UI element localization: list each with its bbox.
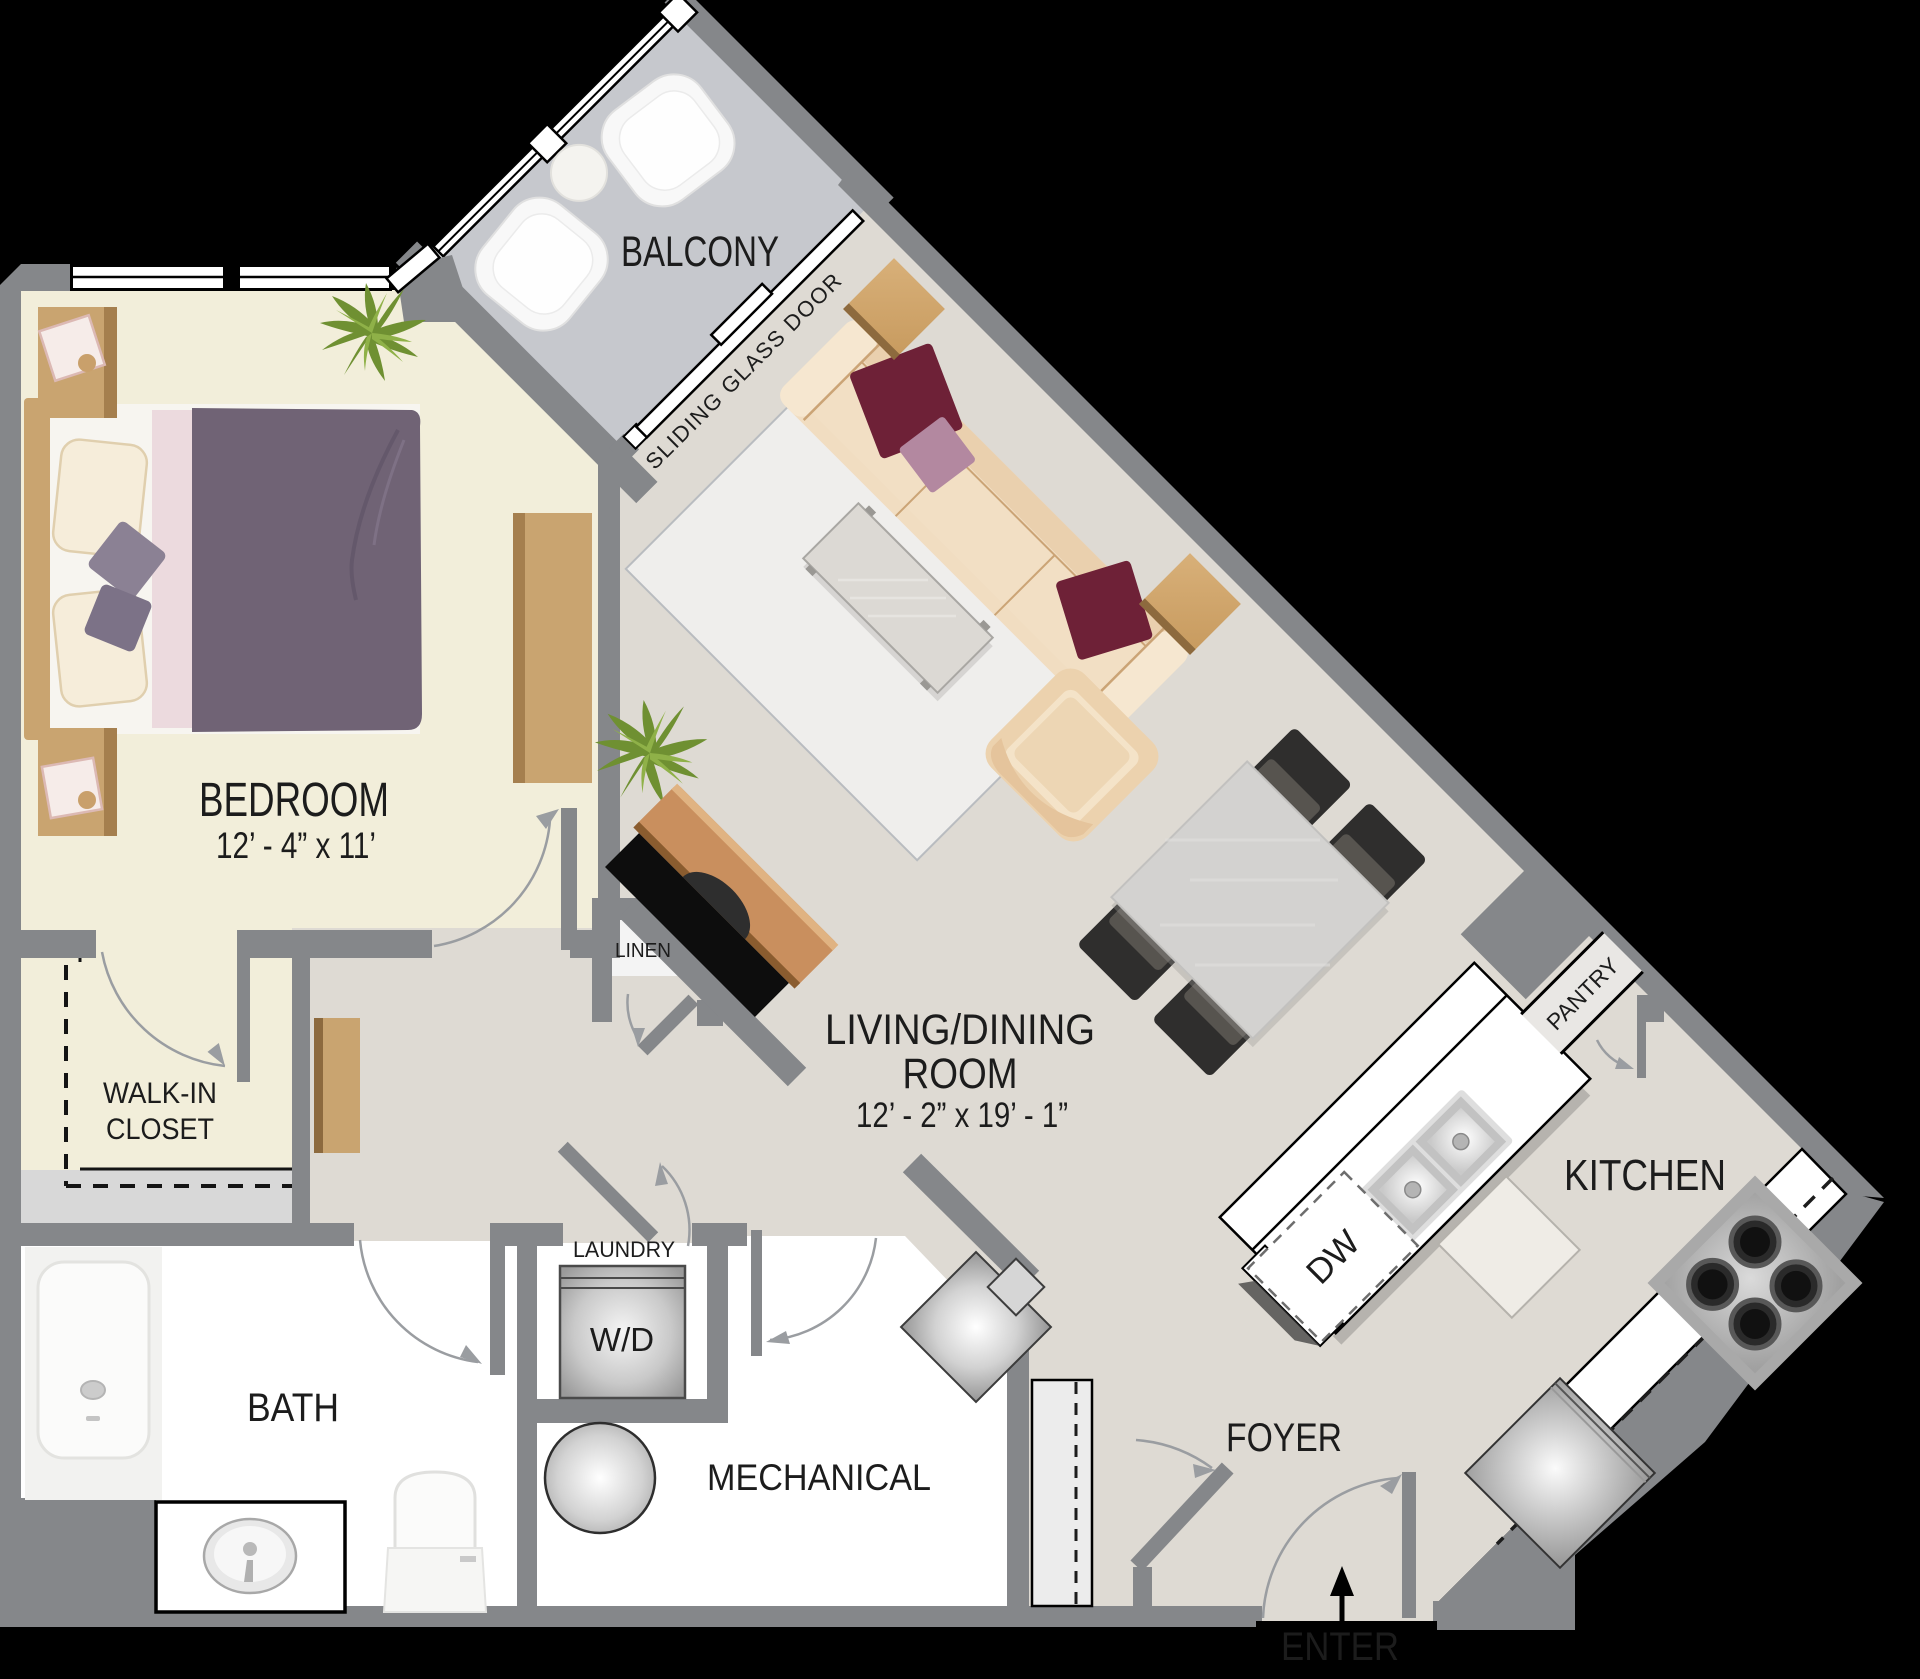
svg-text:LINEN: LINEN (615, 940, 671, 962)
svg-text:BALCONY: BALCONY (621, 228, 779, 276)
svg-text:12’ - 4” x 11’: 12’ - 4” x 11’ (216, 825, 376, 866)
svg-text:BEDROOM: BEDROOM (199, 774, 389, 827)
svg-text:LIVING/DINING: LIVING/DINING (825, 1006, 1095, 1054)
svg-text:KITCHEN: KITCHEN (1564, 1151, 1726, 1200)
svg-text:12’ - 2” x 19’ - 1”: 12’ - 2” x 19’ - 1” (856, 1096, 1068, 1135)
svg-text:LAUNDRY: LAUNDRY (573, 1237, 675, 1262)
svg-text:FOYER: FOYER (1226, 1416, 1342, 1460)
svg-text:CLOSET: CLOSET (106, 1113, 214, 1146)
svg-text:ENTER: ENTER (1281, 1625, 1399, 1669)
svg-text:W/D: W/D (590, 1321, 654, 1358)
svg-text:BATH: BATH (247, 1386, 339, 1430)
svg-text:ROOM: ROOM (903, 1050, 1018, 1098)
svg-text:WALK-IN: WALK-IN (103, 1077, 217, 1110)
svg-text:MECHANICAL: MECHANICAL (707, 1457, 931, 1498)
